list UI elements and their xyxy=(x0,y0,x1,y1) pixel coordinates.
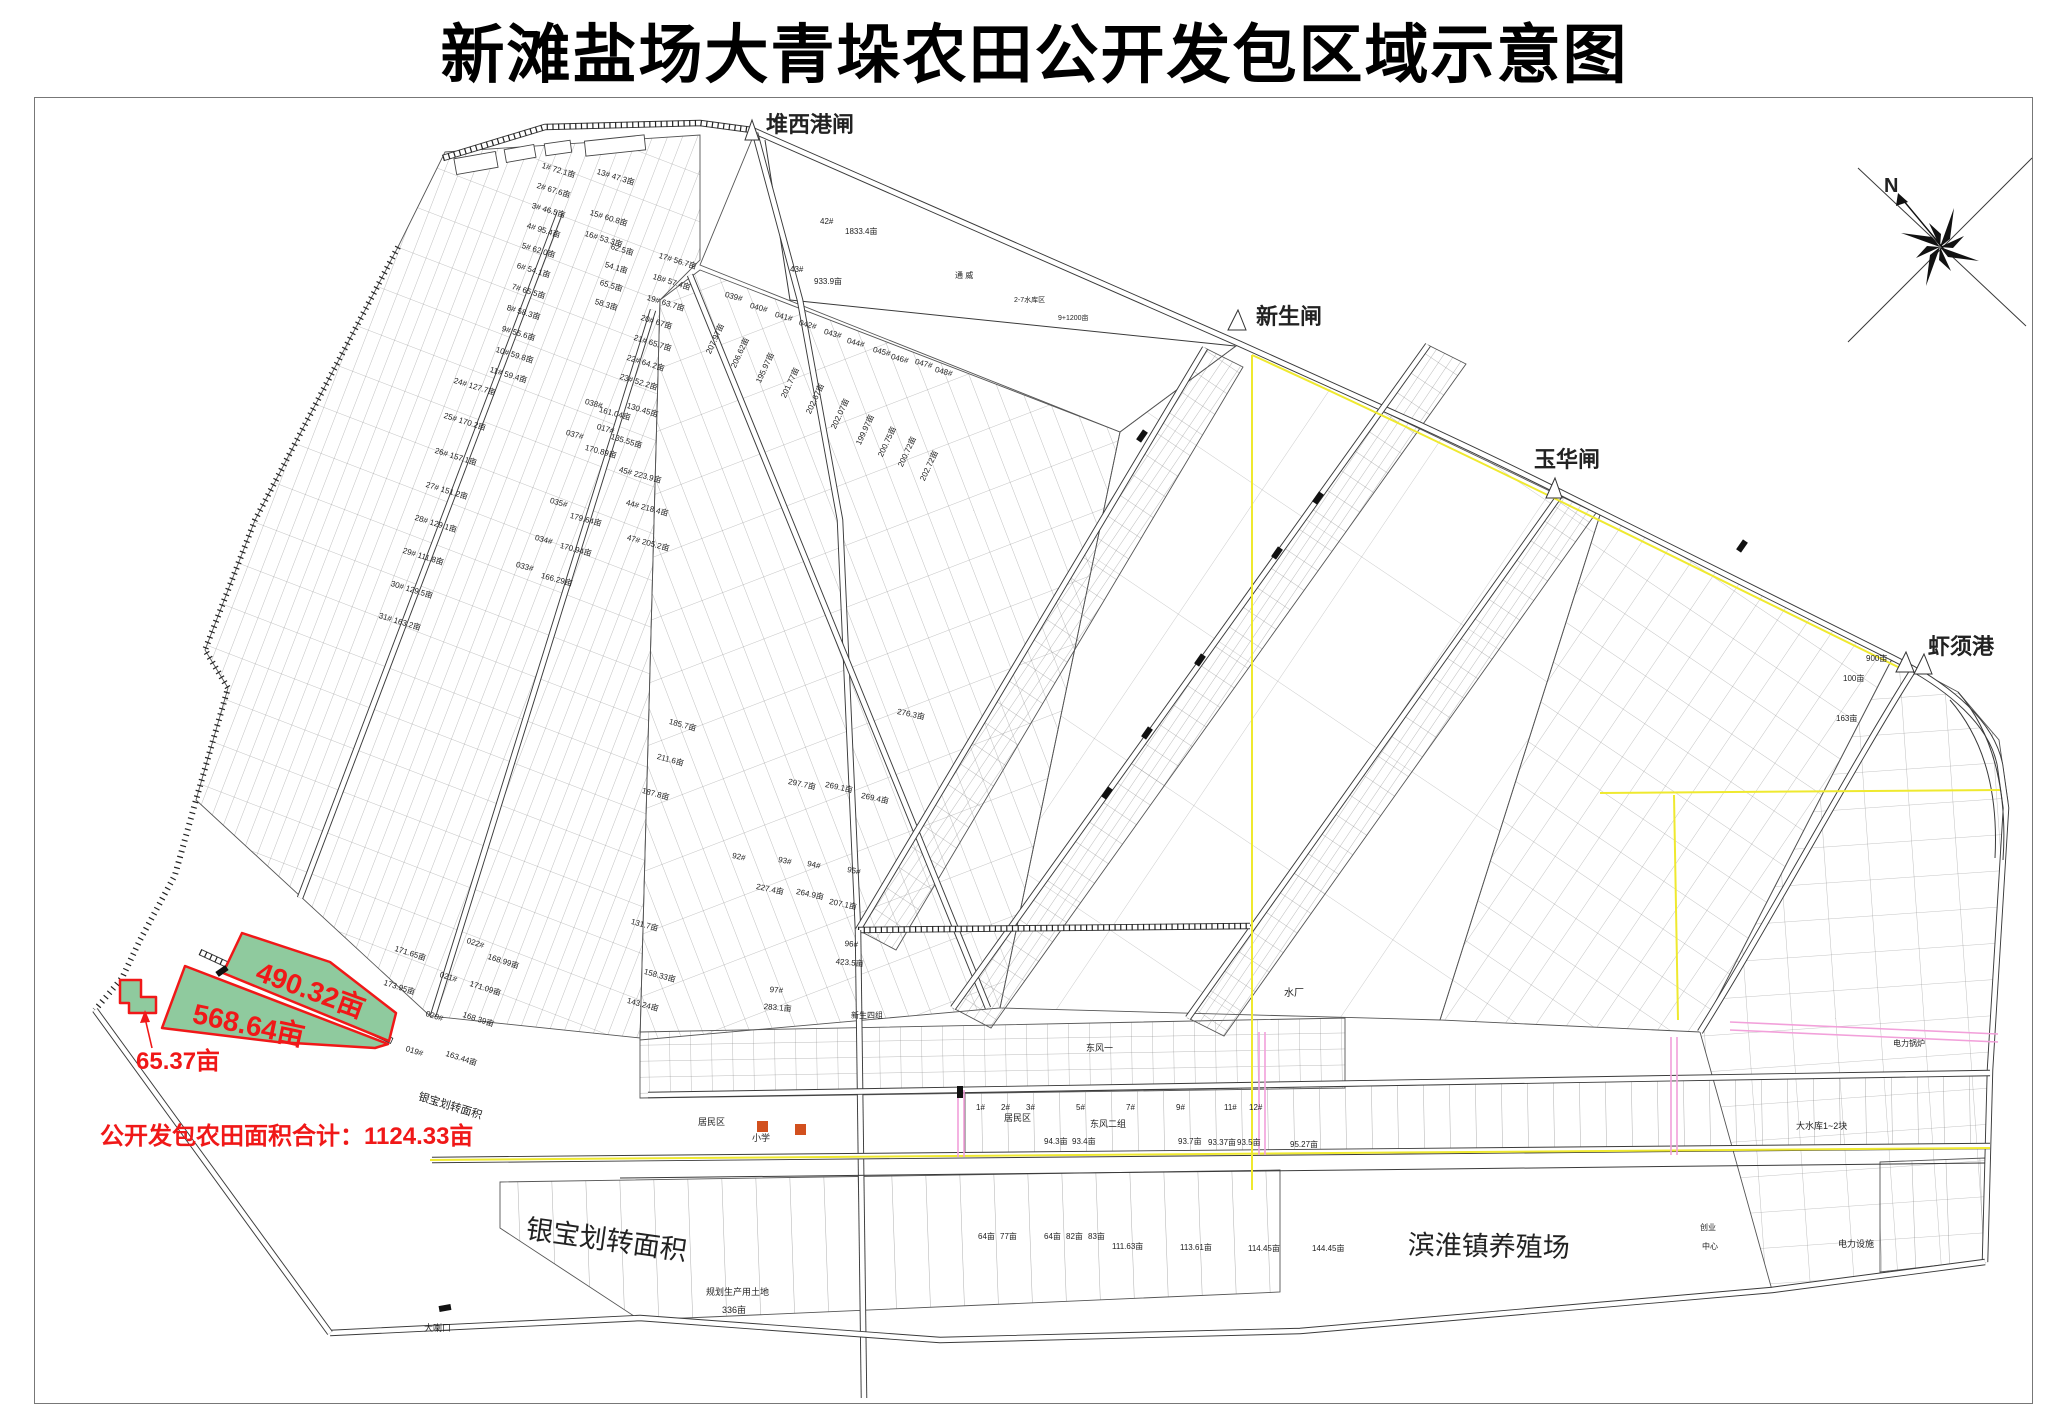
parcel-label: 95.27亩 xyxy=(1290,1141,1318,1149)
parcel-label: 111.63亩 xyxy=(1112,1243,1143,1251)
parcel-label: 9# xyxy=(1176,1104,1185,1112)
parcel-label: 93.4亩 xyxy=(1072,1138,1096,1146)
port-label: 玉华闸 xyxy=(1534,449,1600,471)
gate-icon xyxy=(1228,310,1246,330)
parcel-label: 933.9亩 xyxy=(814,278,842,286)
region-label: 2-7水库区 xyxy=(1014,297,1045,304)
parcel-label: 900亩 xyxy=(1866,655,1887,663)
port-label: 堆西港闸 xyxy=(766,114,854,136)
region-label: 规划生产用土地 xyxy=(706,1288,769,1297)
parcel-label: 43# xyxy=(790,266,803,274)
region-label: 创业 xyxy=(1700,1224,1716,1232)
parcel-label: 96# xyxy=(844,940,858,949)
region-label: 电力锅炉 xyxy=(1893,1040,1925,1048)
parcel-label: 77亩 xyxy=(1000,1233,1017,1241)
parcel-label: 12# xyxy=(1249,1104,1262,1112)
parcel-label: 83亩 xyxy=(1088,1233,1105,1241)
parcel-label: 1833.4亩 xyxy=(845,228,877,236)
parcel-label: 7# xyxy=(1126,1104,1135,1112)
parcel-label: 97# xyxy=(769,986,783,995)
region-label: 滨淮镇养殖场 xyxy=(1408,1232,1570,1262)
parcel-label: 93.7亩 xyxy=(1178,1138,1202,1146)
region-label: 东风二组 xyxy=(1090,1120,1126,1129)
parcel-label: 82亩 xyxy=(1066,1233,1083,1241)
region-label: 居民区 xyxy=(1004,1114,1031,1123)
parcel-label: 163亩 xyxy=(1836,715,1857,723)
schematic-page: 新滩盐场大青垛农田公开发包区域示意图 xyxy=(0,0,2069,1417)
parcel-label: 113.61亩 xyxy=(1180,1244,1212,1252)
parcel-label: 11# xyxy=(1224,1104,1237,1112)
region-label: 大喇口 xyxy=(424,1324,451,1333)
parcel-label: 100亩 xyxy=(1843,675,1864,683)
green-parcel-65 xyxy=(120,980,156,1013)
port-label: 新生闸 xyxy=(1256,306,1322,328)
region-label: 9+1200亩 xyxy=(1058,315,1089,322)
parcel-label: 5# xyxy=(1076,1104,1085,1112)
parcel-label: 1# xyxy=(976,1104,985,1112)
highlighted-parcel-label: 65.37亩 xyxy=(136,1050,220,1074)
compass-north-label: N xyxy=(1884,176,1898,196)
parcel-label: 144.45亩 xyxy=(1312,1245,1344,1253)
region-label: 新生四组 xyxy=(851,1012,883,1020)
parcel-label: 2# xyxy=(1001,1104,1010,1112)
region-label: 小学 xyxy=(752,1134,770,1143)
parcel-label: 94.3亩 xyxy=(1044,1138,1068,1146)
region-label: 居民区 xyxy=(698,1118,725,1127)
region-label: 通 威 xyxy=(955,272,973,280)
region-label: 大水库1~2块 xyxy=(1796,1122,1847,1131)
parcel-label: 93.5亩 xyxy=(1237,1139,1261,1147)
region-label: 水厂 xyxy=(1284,989,1304,999)
cadastral-map-canvas xyxy=(0,0,2069,1417)
region-label: 336亩 xyxy=(722,1306,746,1315)
parcel-label: 64亩 xyxy=(1044,1233,1061,1241)
region-label: 东风一 xyxy=(1086,1044,1113,1053)
region-label: 电力设施 xyxy=(1838,1240,1874,1249)
parcel-label: 114.45亩 xyxy=(1248,1245,1280,1253)
pointer-arrow-line xyxy=(145,1018,152,1048)
parcel-label: 42# xyxy=(820,218,833,226)
port-label: 虾须港 xyxy=(1928,636,1994,658)
parcel-label: 64亩 xyxy=(978,1233,995,1241)
region-label: 中心 xyxy=(1702,1243,1718,1251)
zone-band-row2-right xyxy=(1880,1158,1985,1272)
compass-rose xyxy=(1848,158,2032,342)
parcel-label: 3# xyxy=(1026,1104,1035,1112)
total-area-label: 公开发包农田面积合计：1124.33亩 xyxy=(100,1116,473,1151)
parcel-label: 93.37亩 xyxy=(1208,1139,1236,1147)
